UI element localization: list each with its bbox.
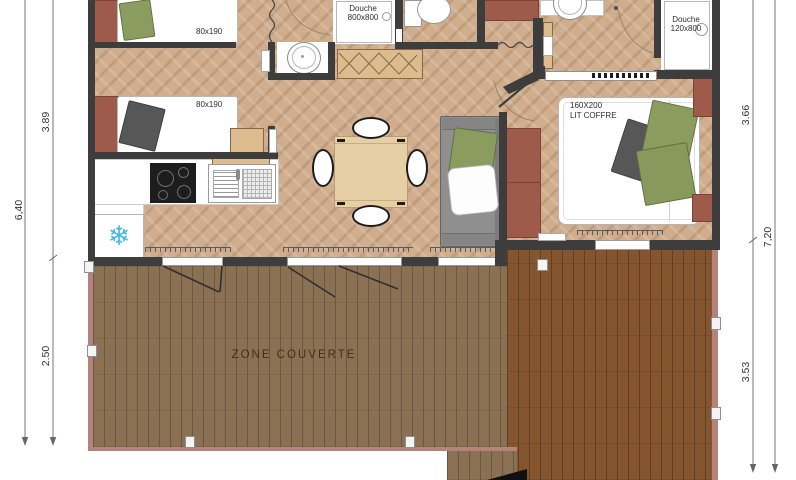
dim-left-terrace: 2.50: [40, 336, 52, 376]
accordion-door-bathroom: [498, 43, 533, 48]
closet-zigzag: [339, 53, 417, 74]
door-hinge-bathroom: [614, 6, 618, 10]
accordion-door-bedrooms: [270, 0, 275, 42]
door-arc-hall: [286, 1, 330, 35]
door-arc-bathroom: [618, 9, 653, 53]
patio-door-leaves: [163, 266, 398, 297]
dim-left-house: 3.89: [40, 102, 52, 142]
dim-left-overall: 6,40: [13, 190, 25, 230]
dim-right-terrace: 3.53: [740, 352, 752, 392]
dimension-lines: [25, 0, 775, 471]
dimension-arrows: [22, 437, 778, 473]
wall-diagonal-master: [503, 72, 539, 94]
floor-plan: 80x190 80x190 ❄: [0, 0, 796, 480]
plan-annotations: [0, 0, 796, 480]
dim-right-house: 3.66: [740, 95, 752, 135]
dim-right-overall: 7,20: [762, 217, 774, 257]
